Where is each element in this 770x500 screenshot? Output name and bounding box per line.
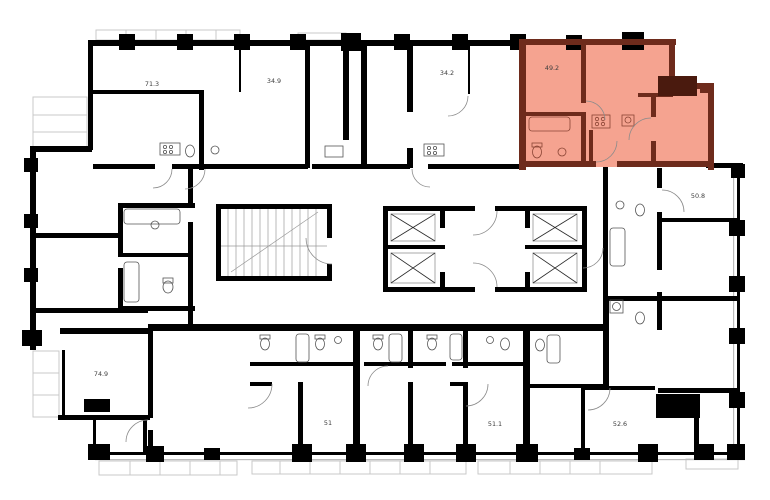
- unit-label-51-1: 51.1: [488, 420, 502, 428]
- floor-plan-page: 71.3 34.9 34.2 49.2 50.8 74.9 51 51.1 52…: [0, 0, 770, 500]
- unit-label-71-3: 71.3: [145, 80, 159, 88]
- floor-plan-svg: 71.3 34.9 34.2 49.2 50.8 74.9 51 51.1 52…: [0, 0, 770, 500]
- unit-label-51: 51: [324, 419, 332, 427]
- stairwell: [221, 209, 327, 276]
- unit-label-34-9: 34.9: [267, 77, 281, 85]
- unit-label-34-2: 34.2: [440, 69, 454, 77]
- unit-label-52-6: 52.6: [613, 420, 627, 428]
- unit-label-74-9: 74.9: [94, 370, 108, 378]
- unit-label-50-8: 50.8: [691, 192, 705, 200]
- unit-label-49-2-highlighted[interactable]: 49.2: [545, 64, 559, 72]
- structural-column: [658, 76, 697, 96]
